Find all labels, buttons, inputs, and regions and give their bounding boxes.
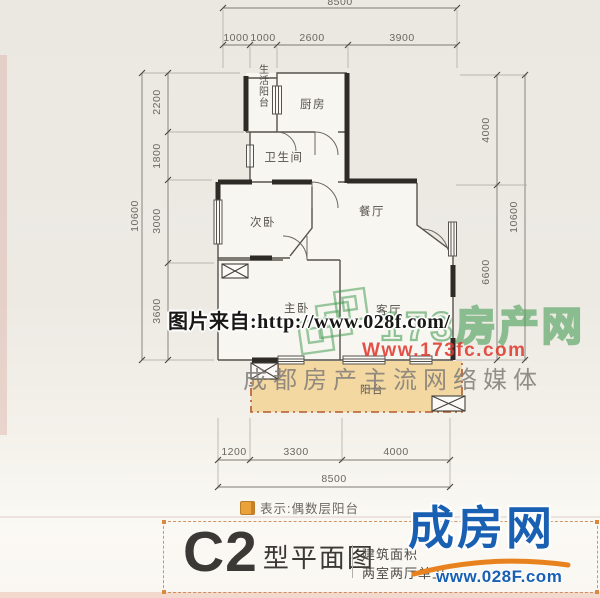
dim-top-seg: 1000	[250, 32, 275, 44]
brand-name: 成房网	[408, 503, 593, 554]
brand-logo: 成房网 www.028F.com	[408, 503, 593, 554]
dim-bottom-total: 8500	[321, 473, 346, 485]
dim-bottom-seg: 1200	[221, 446, 246, 458]
balcony-area	[251, 361, 462, 412]
flue-box	[251, 363, 278, 379]
dim-left-seg: 3600	[151, 298, 163, 323]
dim-left-seg: 3000	[151, 208, 163, 233]
corner-marker	[162, 520, 166, 524]
room-label-kitchen: 厨房	[300, 98, 326, 111]
corner-marker	[595, 520, 599, 524]
building-blocks-icon	[294, 286, 372, 366]
dim-right-total: 10600	[508, 201, 520, 233]
dim-top-seg: 1000	[223, 32, 248, 44]
divider	[352, 545, 353, 578]
flue-box	[222, 264, 248, 278]
flue-box	[432, 396, 465, 411]
dim-top-seg: 3900	[389, 32, 414, 44]
room-label-service-balcony: 生活阳台	[257, 63, 269, 108]
room-label-bathroom: 卫生间	[265, 150, 304, 164]
plan-code: C2	[183, 526, 258, 578]
corner-marker	[162, 590, 166, 594]
dim-right-seg: 4000	[480, 117, 492, 142]
room-label-living: 客厅	[376, 303, 402, 317]
dim-left-seg: 2200	[151, 89, 163, 114]
dim-left-total: 10600	[129, 200, 141, 232]
dim-bottom-seg: 4000	[383, 446, 408, 458]
brand-url: www.028F.com	[436, 567, 562, 587]
corner-marker	[595, 590, 599, 594]
balcony-legend-icon	[240, 501, 255, 515]
plan-type-label: 型平面图	[263, 538, 375, 575]
dim-bottom-seg: 3300	[283, 446, 308, 458]
room-label-dining: 餐厅	[359, 204, 385, 218]
window	[247, 145, 254, 167]
dim-top-seg: 2600	[299, 32, 324, 44]
window	[410, 356, 432, 364]
room-label-balcony: 阳台	[360, 383, 384, 396]
legend-label: 表示:偶数层阳台	[260, 498, 359, 517]
room-label-secondary-bedroom: 次卧	[250, 215, 276, 229]
floor-plan: 8500 1000 1000 2600 3900 10600 2200 1800…	[0, 0, 600, 520]
window	[214, 200, 222, 244]
window	[449, 222, 457, 256]
legend: 表示:偶数层阳台	[240, 498, 359, 517]
dim-right-seg: 6600	[480, 259, 492, 284]
plan-title: C2 型平面图	[183, 526, 375, 578]
scanned-floorplan-page: 8500 1000 1000 2600 3900 10600 2200 1800…	[0, 0, 600, 598]
dim-left-seg: 1800	[151, 143, 163, 168]
window	[273, 86, 282, 114]
dim-top-total: 8500	[327, 0, 352, 8]
